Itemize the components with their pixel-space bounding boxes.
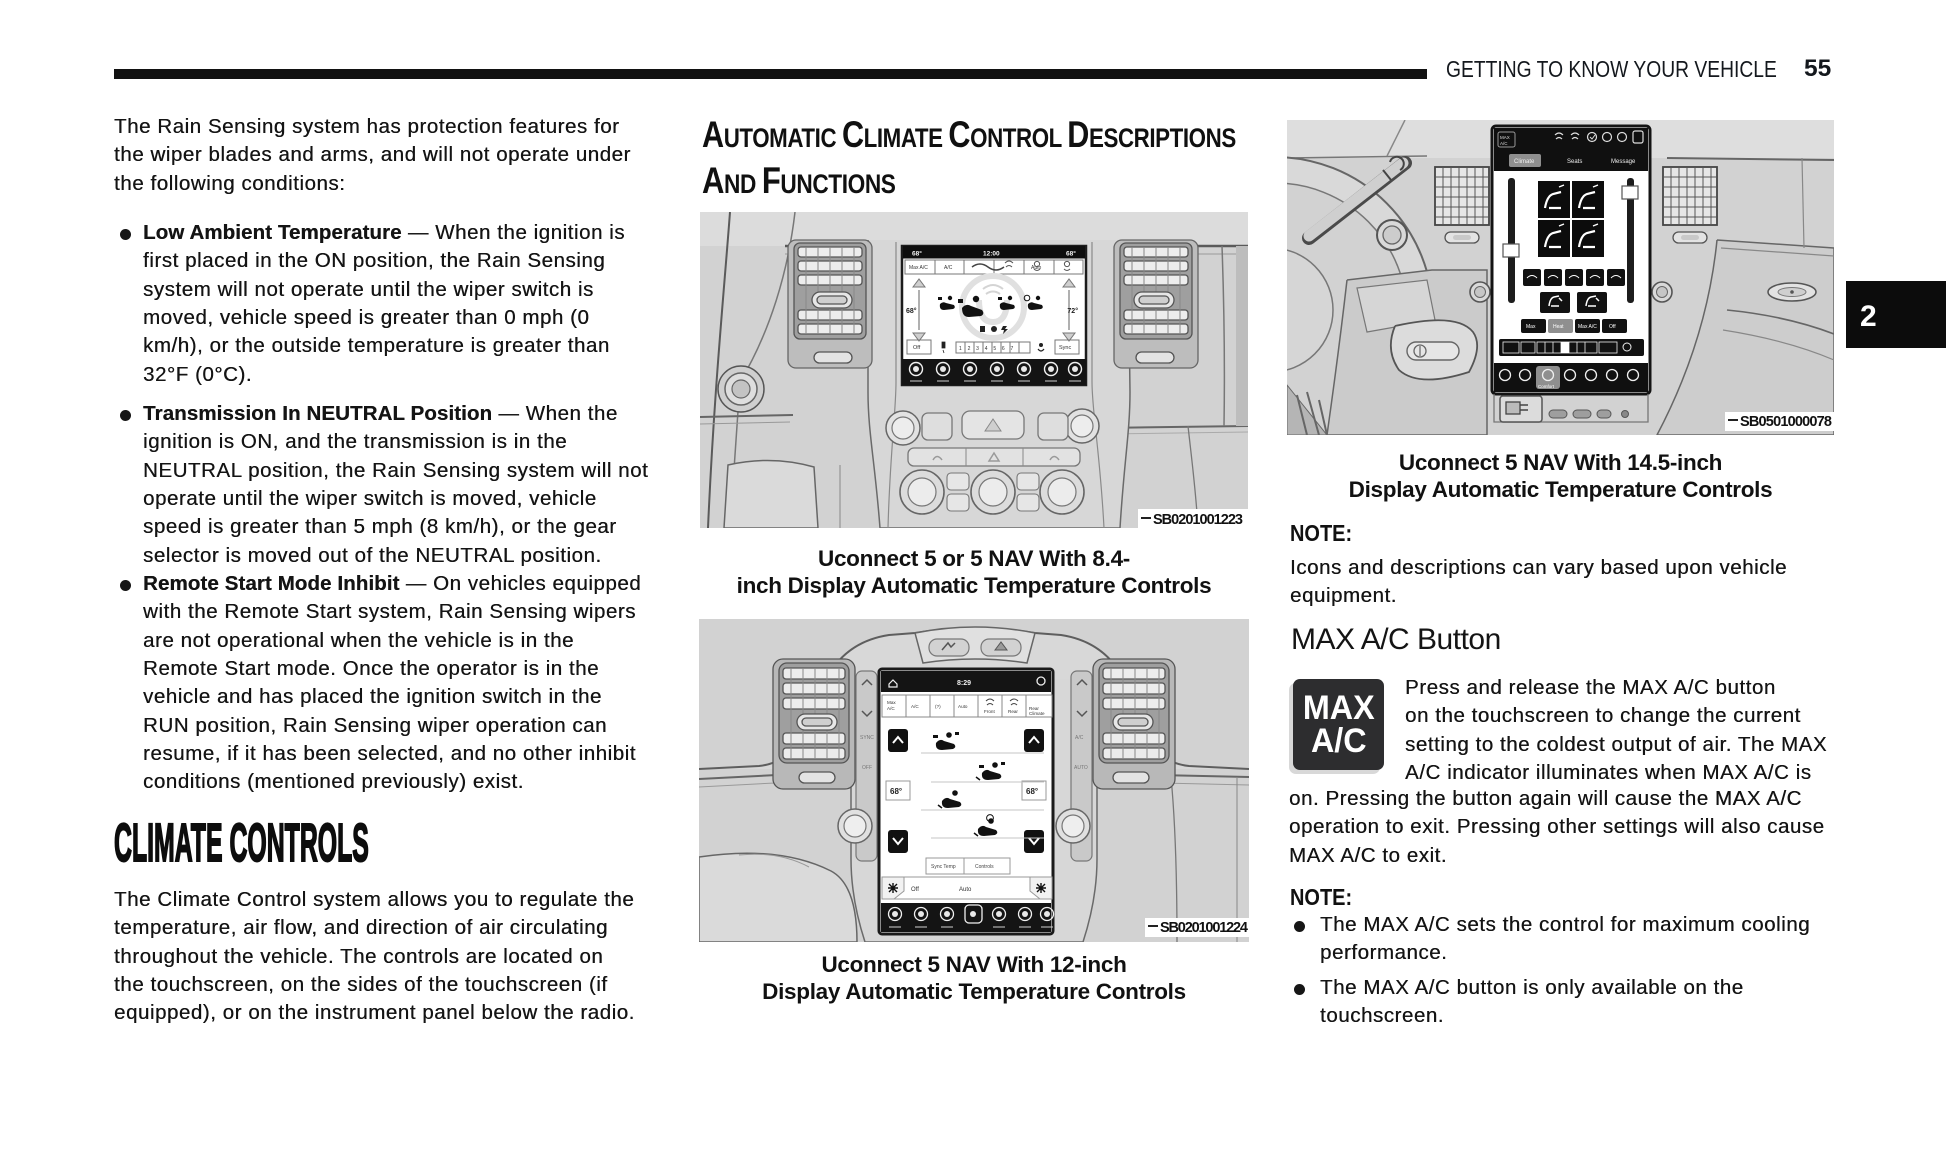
svg-text:Auto: Auto (959, 887, 972, 893)
svg-text:68°: 68° (890, 787, 902, 796)
svg-text:68°: 68° (912, 250, 922, 258)
svg-text:Climate: Climate (1514, 159, 1535, 165)
svg-text:1234567: 1234567 (959, 346, 1019, 352)
svg-text:Rear: Rear (1008, 709, 1018, 714)
svg-text:Off: Off (913, 345, 921, 351)
svg-text:OFF: OFF (862, 765, 872, 771)
svg-text:Max A/C: Max A/C (1578, 324, 1597, 330)
svg-text:SB0201001224: SB0201001224 (1160, 920, 1248, 936)
svg-text:A/C: A/C (944, 265, 953, 271)
svg-text:Message: Message (1611, 159, 1636, 165)
svg-text:Max A/C: Max A/C (909, 265, 928, 271)
svg-text:Sync: Sync (1059, 345, 1071, 351)
svg-text:8:29: 8:29 (957, 680, 971, 687)
svg-text:Comfort: Comfort (1538, 384, 1555, 389)
svg-text:Controls: Controls (975, 864, 994, 870)
svg-text:Front: Front (984, 709, 995, 714)
svg-text:A/C: A/C (1500, 141, 1508, 146)
svg-text:SYNC: SYNC (860, 735, 874, 741)
svg-text:A/C: A/C (887, 706, 895, 711)
svg-text:Sync Temp: Sync Temp (931, 864, 956, 870)
svg-text:Climate: Climate (1029, 711, 1045, 716)
svg-text:Off: Off (1609, 324, 1616, 330)
svg-text:Heat: Heat (1553, 324, 1564, 330)
svg-text:AUTO: AUTO (1074, 765, 1088, 771)
svg-text:68°: 68° (1026, 787, 1038, 796)
svg-text:Max: Max (887, 700, 896, 705)
svg-text:72°: 72° (1067, 307, 1078, 315)
svg-text:SB0201001223: SB0201001223 (1153, 512, 1243, 528)
svg-text:Auto: Auto (958, 704, 968, 709)
svg-text:SB0501000078: SB0501000078 (1740, 414, 1832, 430)
svg-text:Max: Max (1526, 324, 1536, 330)
svg-text:68°: 68° (1066, 250, 1076, 258)
svg-text:(?): (?) (935, 704, 941, 709)
svg-text:12:00: 12:00 (983, 251, 1000, 258)
svg-text:A/C: A/C (1075, 735, 1084, 741)
svg-text:Off: Off (911, 887, 919, 893)
svg-text:Seats: Seats (1567, 159, 1582, 165)
svg-text:A/C: A/C (911, 704, 919, 709)
svg-text:MAX: MAX (1500, 135, 1510, 140)
svg-text:68°: 68° (906, 307, 917, 315)
